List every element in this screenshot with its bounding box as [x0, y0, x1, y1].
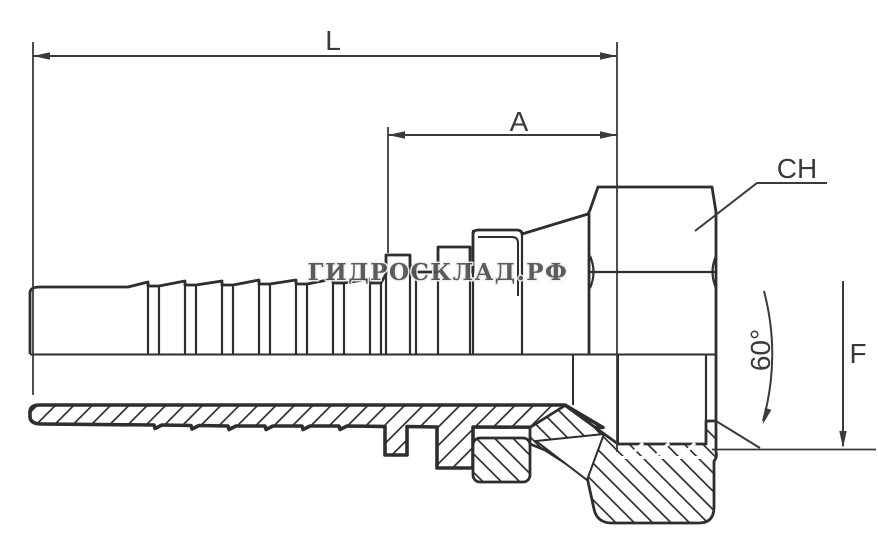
arrow-down-icon: [839, 431, 846, 448]
arrow-left-icon: [388, 131, 405, 139]
head-section: [530, 406, 716, 524]
collar-edges: [386, 230, 522, 354]
hex-size-label: CH: [777, 153, 817, 184]
fitting-drawing: L A CH 60° F ГИДРОСКЛАД.РФ: [0, 0, 878, 540]
barb-edges: [148, 279, 381, 354]
arrow-right-icon: [600, 52, 617, 60]
dim-L-label: L: [325, 25, 341, 56]
cone-extension-line: [716, 421, 760, 448]
arrow-left-icon: [33, 52, 50, 60]
section-lower-half: [30, 354, 716, 523]
dimension-cone-angle: 60°: [716, 291, 776, 448]
technical-drawing-page: L A CH 60° F ГИДРОСКЛАД.РФ: [0, 0, 878, 540]
cone-angle-label: 60°: [745, 329, 776, 371]
dimension-L: L: [33, 25, 617, 452]
watermark-text: ГИДРОСКЛАД.РФ: [308, 259, 569, 286]
arrow-down-icon: [763, 408, 771, 424]
thread-size-label: F: [849, 338, 866, 369]
dimension-F: F: [712, 281, 876, 450]
dim-A-label: A: [510, 106, 529, 137]
skirt-section: [473, 438, 530, 482]
arrow-right-icon: [600, 131, 617, 139]
